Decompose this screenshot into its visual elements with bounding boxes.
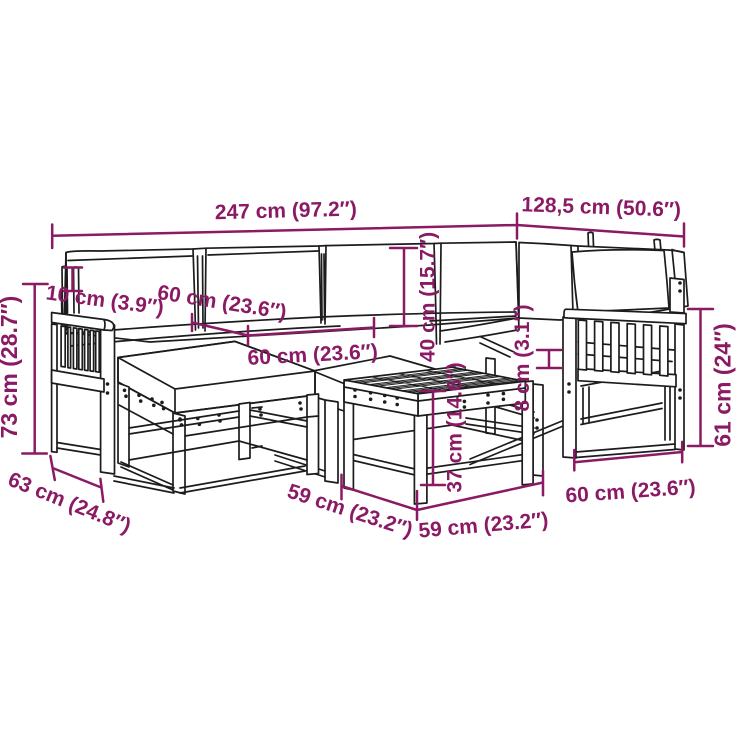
svg-text:8 cm (3.1″): 8 cm (3.1″): [511, 305, 534, 412]
svg-text:73 cm (28.7″): 73 cm (28.7″): [0, 296, 22, 439]
svg-text:40 cm (15.7″): 40 cm (15.7″): [417, 232, 440, 362]
svg-text:37 cm (14.6″): 37 cm (14.6″): [444, 362, 467, 492]
svg-text:247 cm (97.2″): 247 cm (97.2″): [215, 198, 358, 225]
svg-text:61 cm (24″): 61 cm (24″): [710, 323, 736, 447]
